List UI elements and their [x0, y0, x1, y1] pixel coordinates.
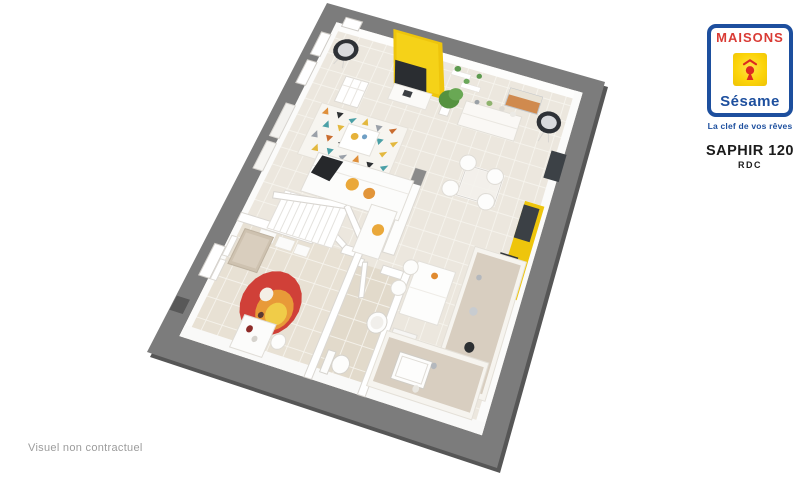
plan-shape: [455, 66, 462, 72]
dining-chair: [477, 194, 494, 210]
keyhole-icon: [733, 53, 767, 86]
model-level: RDC: [697, 160, 803, 170]
logo-sesame-text: Sésame: [720, 94, 780, 109]
logo-tagline: La clef de vos rêves: [697, 121, 803, 131]
logo-maisons-text: MAISONS: [716, 31, 784, 44]
maisons-sesame-logo: MAISONS Sésame: [707, 24, 793, 117]
dining-chair: [442, 180, 459, 196]
stool: [403, 260, 418, 275]
floorplan-3d: [0, 0, 811, 480]
model-name: SAPHIR 120: [697, 143, 803, 159]
brand-block: MAISONS Sésame La clef de vos rêves SAPH…: [697, 24, 803, 170]
toilet-bowl: [332, 355, 350, 373]
dining-chair: [487, 169, 504, 185]
dining-chair: [460, 155, 477, 171]
stool: [391, 280, 406, 295]
disclaimer-text: Visuel non contractuel: [28, 442, 143, 454]
